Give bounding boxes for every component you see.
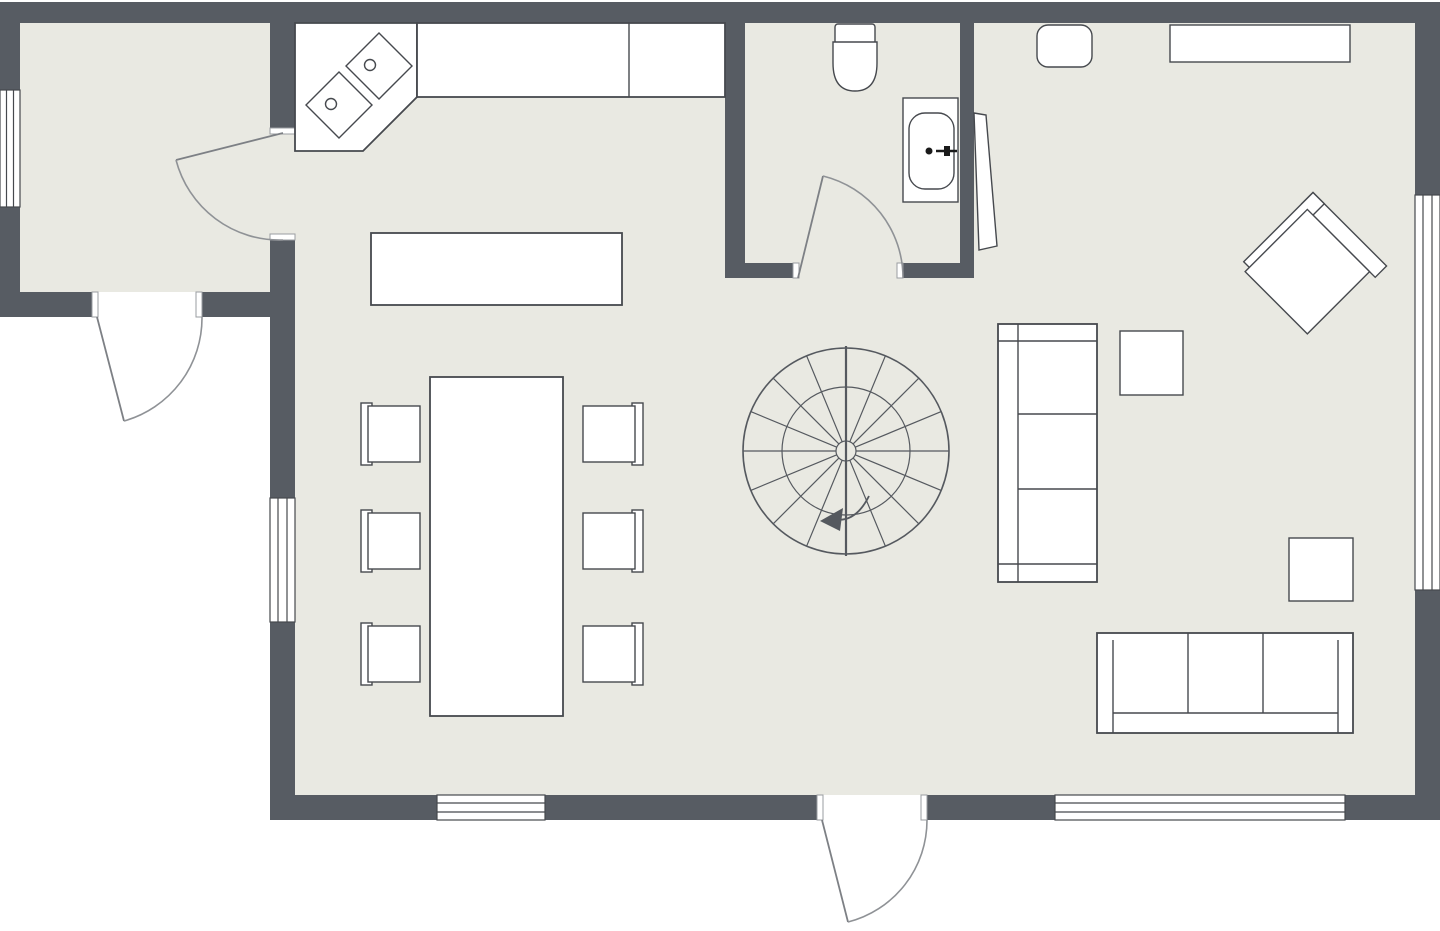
floor-plan-canvas [0, 0, 1440, 931]
bathtub [903, 98, 958, 202]
entry-room-floor [20, 23, 270, 292]
window-main-left [270, 498, 295, 622]
wall-top [0, 2, 1440, 23]
dining-chair [583, 403, 643, 465]
dining-chair [583, 510, 643, 572]
sofa-left [998, 324, 1097, 582]
dining-chair [361, 623, 420, 685]
kitchen-counter [417, 23, 725, 97]
dining-chair [361, 403, 420, 465]
burner-knob [365, 60, 376, 71]
pouf [1037, 25, 1092, 67]
dining-chair [583, 623, 643, 685]
floor-plan [0, 0, 1440, 931]
dining-area [361, 377, 643, 716]
sofa-bottom [1097, 633, 1353, 733]
dining-chair [361, 510, 420, 572]
window-right [1415, 195, 1440, 590]
sideboard [1170, 25, 1350, 62]
toilet [833, 24, 877, 91]
dining-table [430, 377, 563, 716]
kitchen-island [371, 233, 622, 305]
side-table [1289, 538, 1353, 601]
tub-faucet-handle [944, 146, 950, 156]
burner-knob [326, 99, 337, 110]
wall-bathroom-right [960, 23, 974, 278]
window-entry-left [0, 90, 20, 207]
main-entry-door [817, 795, 927, 922]
window-bottom-right [1055, 795, 1345, 820]
spiral-staircase [743, 346, 949, 556]
side-door [92, 292, 202, 421]
wall-bathroom-left [725, 23, 745, 278]
side-table [1120, 331, 1183, 395]
tub-drain [926, 148, 933, 155]
window-bottom-left [437, 795, 545, 820]
